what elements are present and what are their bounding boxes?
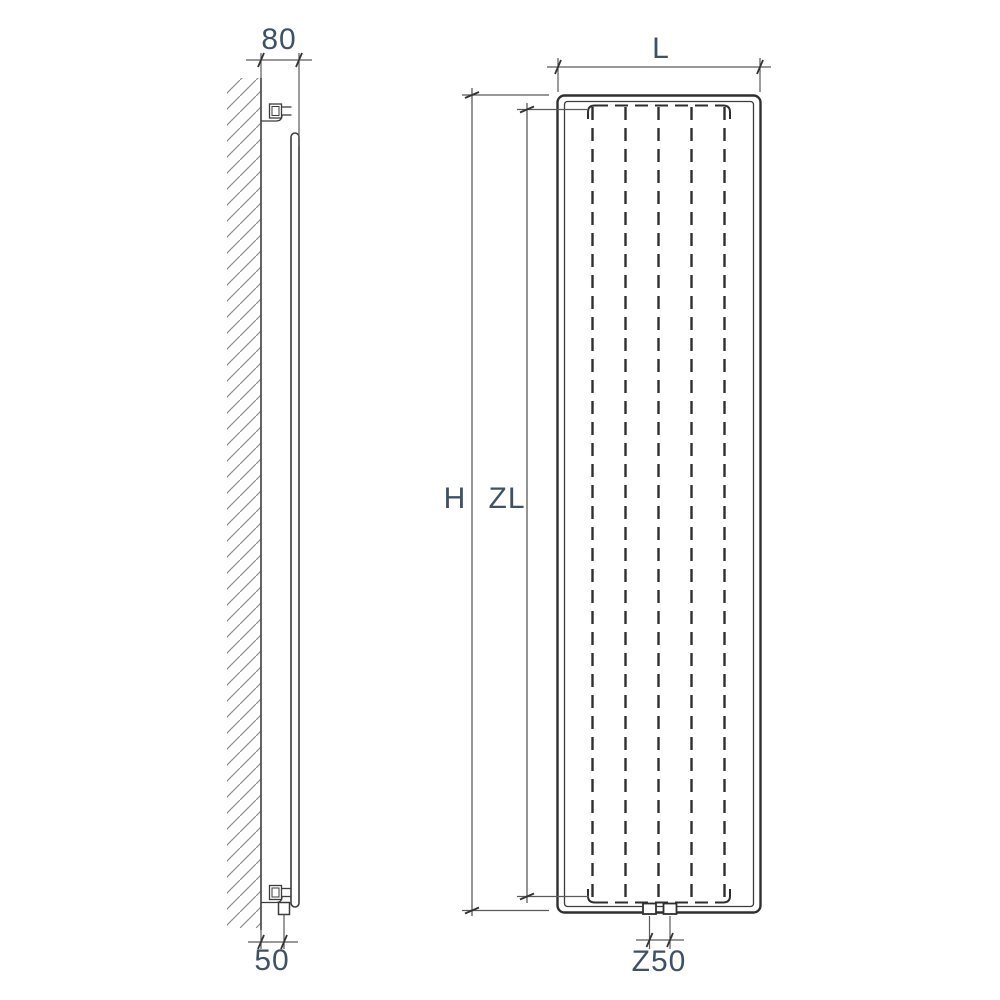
- dim-label-depth: 80: [261, 25, 296, 55]
- dim-label-inner-height: ZL: [488, 484, 525, 514]
- radiator-side-profile: [291, 133, 299, 907]
- mounting-bracket-top: [261, 104, 292, 121]
- dim-label-width: L: [652, 34, 670, 64]
- bottom-valve: [279, 903, 290, 915]
- radiator-dimension-drawing: 80 L H ZL 50 Z50: [0, 0, 1000, 1000]
- wall-hatch: [227, 78, 261, 928]
- side-view: [227, 53, 312, 949]
- dim-label-wall-clearance: 50: [254, 946, 289, 976]
- dim-label-height: H: [444, 484, 467, 514]
- mounting-bracket-bottom: [261, 886, 292, 903]
- dim-label-connection-spacing: Z50: [632, 947, 687, 977]
